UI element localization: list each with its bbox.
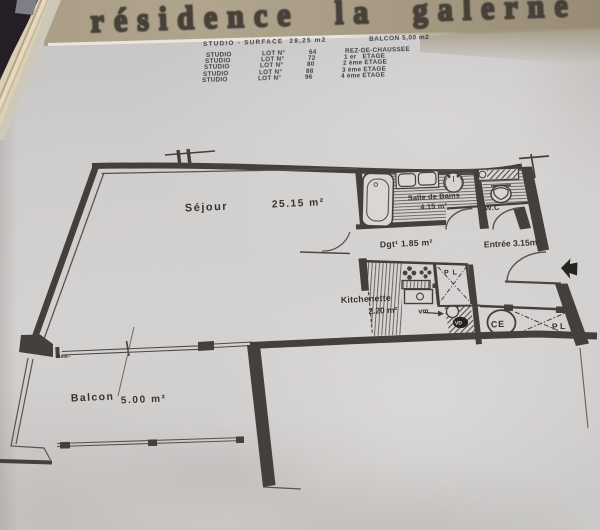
svg-text:VD: VD [455,320,463,326]
svg-text:2.20 m²: 2.20 m² [368,305,397,316]
svg-text:Séjour: Séjour [185,201,229,215]
svg-text:Dgt¹ 1.85 m²: Dgt¹ 1.85 m² [380,237,433,249]
svg-text:25.15 m²: 25.15 m² [272,197,325,210]
svg-text:4.15 m²: 4.15 m² [420,201,448,212]
svg-text:Entrée 3.15m²: Entrée 3.15m² [484,237,541,249]
svg-text:W.C: W.C [484,203,500,213]
svg-text:5.00 m²: 5.00 m² [121,394,167,407]
svg-text:PL: PL [552,321,568,332]
svg-text:Balcon: Balcon [71,391,115,405]
svg-text:P L: P L [444,267,458,277]
svg-text:vm: vm [418,308,428,315]
svg-text:CE: CE [491,319,505,330]
svg-text:Beat⎯: Beat⎯ [57,353,71,360]
